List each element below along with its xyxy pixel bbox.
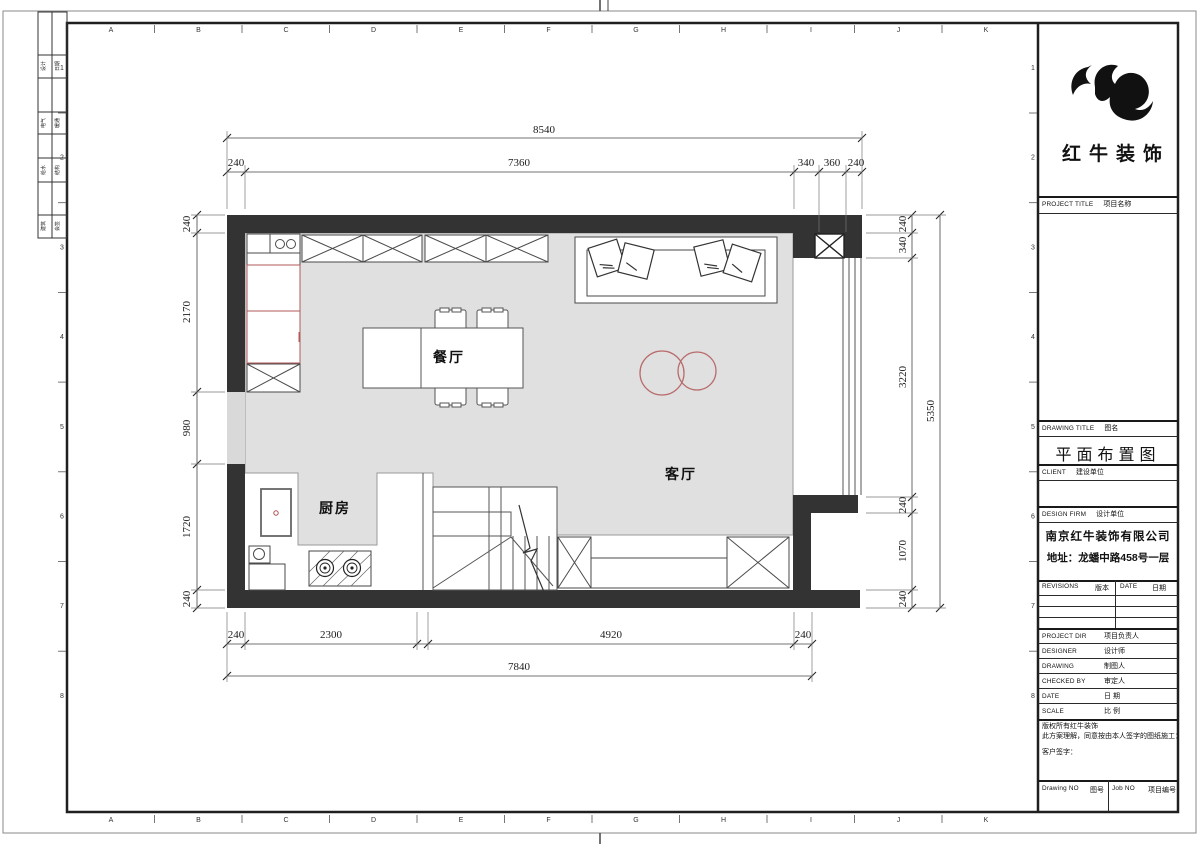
drawing-title-value: 平面布置图: [1038, 441, 1178, 465]
svg-text:6: 6: [60, 514, 64, 521]
svg-text:建筑: 建筑: [40, 221, 47, 231]
project-dir-row: PROJECT DIR 项目负责人: [1038, 629, 1186, 641]
wall-opening: [227, 392, 245, 464]
svg-text:H: H: [721, 817, 726, 824]
svg-text:G: G: [633, 817, 638, 824]
svg-text:1: 1: [1031, 65, 1035, 72]
svg-text:A: A: [109, 27, 114, 34]
bull-logo-icon: [1058, 51, 1158, 135]
floor-plan-canvas: 设计日期电气暖通给水结构建筑会签 AABBCCDDEEFFGGHHIIJJKK1…: [0, 0, 1200, 844]
svg-text:E: E: [459, 27, 464, 34]
svg-text:1: 1: [60, 65, 64, 72]
column-box-icon: [815, 234, 844, 258]
signature-table-text: 设计日期电气暖通给水结构建筑会签: [40, 61, 61, 231]
svg-text:980: 980: [181, 419, 193, 436]
design-firm-row: DESIGN FIRM 设计单位: [1038, 507, 1186, 519]
svg-text:7: 7: [1031, 603, 1035, 610]
company-logo: [1038, 51, 1178, 140]
copyright-line1: 版权所有红牛装饰: [1038, 723, 1186, 731]
kitchen-fixtures: [249, 489, 291, 590]
svg-text:D: D: [371, 27, 376, 34]
top-cabinets: [302, 235, 548, 262]
svg-text:3: 3: [60, 244, 64, 251]
svg-text:240: 240: [228, 629, 245, 641]
svg-text:8: 8: [60, 693, 64, 700]
svg-text:3220: 3220: [897, 366, 909, 389]
svg-text:7: 7: [60, 603, 64, 610]
svg-text:240: 240: [181, 590, 193, 607]
svg-text:240: 240: [897, 496, 909, 513]
date-row: DATE 日 期: [1038, 689, 1186, 701]
svg-text:I: I: [810, 27, 812, 34]
svg-text:340: 340: [798, 157, 815, 169]
firm-name: 南京红牛装饰有限公司: [1038, 528, 1178, 544]
svg-text:4: 4: [1031, 334, 1035, 341]
svg-text:240: 240: [897, 215, 909, 232]
tv-cabinet-row: [558, 537, 789, 588]
copyright-line2: 此方案理解，同意按由本人签字的图纸施工：: [1038, 733, 1186, 741]
svg-text:240: 240: [795, 629, 812, 641]
svg-text:1070: 1070: [897, 540, 909, 563]
svg-text:暖通: 暖通: [54, 118, 61, 128]
svg-text:5: 5: [1031, 424, 1035, 431]
svg-text:J: J: [897, 817, 901, 824]
room-label-living: 客厅: [664, 466, 697, 482]
svg-text:2170: 2170: [181, 301, 193, 324]
svg-text:D: D: [371, 817, 376, 824]
svg-text:K: K: [984, 817, 989, 824]
svg-text:240: 240: [897, 590, 909, 607]
svg-text:5: 5: [60, 424, 64, 431]
staircase: [423, 473, 557, 599]
svg-text:会签: 会签: [54, 221, 61, 231]
title-block: 红牛装饰 PROJECT TITLE 项目名称 DRAWING TITLE 图名…: [1038, 23, 1178, 812]
drawing-title-row: DRAWING TITLE 图名: [1038, 421, 1186, 433]
room-label-dining: 餐厅: [432, 349, 465, 365]
svg-text:4920: 4920: [600, 629, 623, 641]
room-label-kitchen: 厨房: [319, 500, 351, 516]
scale-row: SCALE 比 例: [1038, 704, 1186, 716]
designer-row: DESIGNER 设计师: [1038, 644, 1186, 656]
window-band: [843, 258, 861, 495]
svg-text:240: 240: [228, 157, 245, 169]
svg-text:B: B: [196, 27, 201, 34]
svg-text:B: B: [196, 817, 201, 824]
svg-text:2: 2: [1031, 155, 1035, 162]
svg-text:H: H: [721, 27, 726, 34]
svg-text:5350: 5350: [925, 400, 937, 423]
svg-text:J: J: [897, 27, 901, 34]
drawing-sheet: 设计日期电气暖通给水结构建筑会签 AABBCCDDEEFFGGHHIIJJKK1…: [0, 0, 1200, 844]
svg-text:电气: 电气: [40, 118, 47, 128]
client-row: CLIENT 建设单位: [1038, 465, 1186, 477]
svg-text:1720: 1720: [181, 516, 193, 539]
svg-text:给水: 给水: [40, 165, 47, 175]
svg-text:6: 6: [1031, 514, 1035, 521]
company-name: 红牛装饰: [1038, 139, 1186, 166]
svg-text:A: A: [109, 817, 114, 824]
checked-by-row: CHECKED BY 审定人: [1038, 674, 1186, 686]
svg-text:360: 360: [824, 157, 841, 169]
svg-text:G: G: [633, 27, 638, 34]
svg-text:E: E: [459, 817, 464, 824]
svg-text:7840: 7840: [508, 661, 531, 673]
svg-text:4: 4: [60, 334, 64, 341]
svg-text:结构: 结构: [54, 165, 61, 175]
svg-text:8: 8: [1031, 693, 1035, 700]
gas-stove: [309, 551, 371, 586]
drawing-row: DRAWING 制图人: [1038, 659, 1186, 671]
svg-text:240: 240: [181, 215, 193, 232]
fridge: [261, 489, 291, 536]
svg-text:3: 3: [1031, 244, 1035, 251]
svg-text:C: C: [283, 817, 288, 824]
firm-address: 地址：龙蟠中路458号一层: [1038, 550, 1178, 565]
svg-text:2300: 2300: [320, 629, 343, 641]
svg-text:F: F: [546, 817, 550, 824]
svg-text:340: 340: [897, 236, 909, 253]
kitchen-counter: [247, 234, 300, 392]
svg-text:I: I: [810, 817, 812, 824]
svg-text:7360: 7360: [508, 157, 531, 169]
svg-text:C: C: [283, 27, 288, 34]
svg-text:2: 2: [60, 155, 64, 162]
svg-text:K: K: [984, 27, 989, 34]
project-title-row: PROJECT TITLE 项目名称: [1038, 197, 1186, 209]
customer-signature-line: 客户签字：: [1038, 749, 1186, 757]
svg-text:8540: 8540: [533, 124, 556, 136]
svg-text:240: 240: [848, 157, 865, 169]
svg-text:设计: 设计: [40, 61, 47, 71]
svg-text:F: F: [546, 27, 550, 34]
